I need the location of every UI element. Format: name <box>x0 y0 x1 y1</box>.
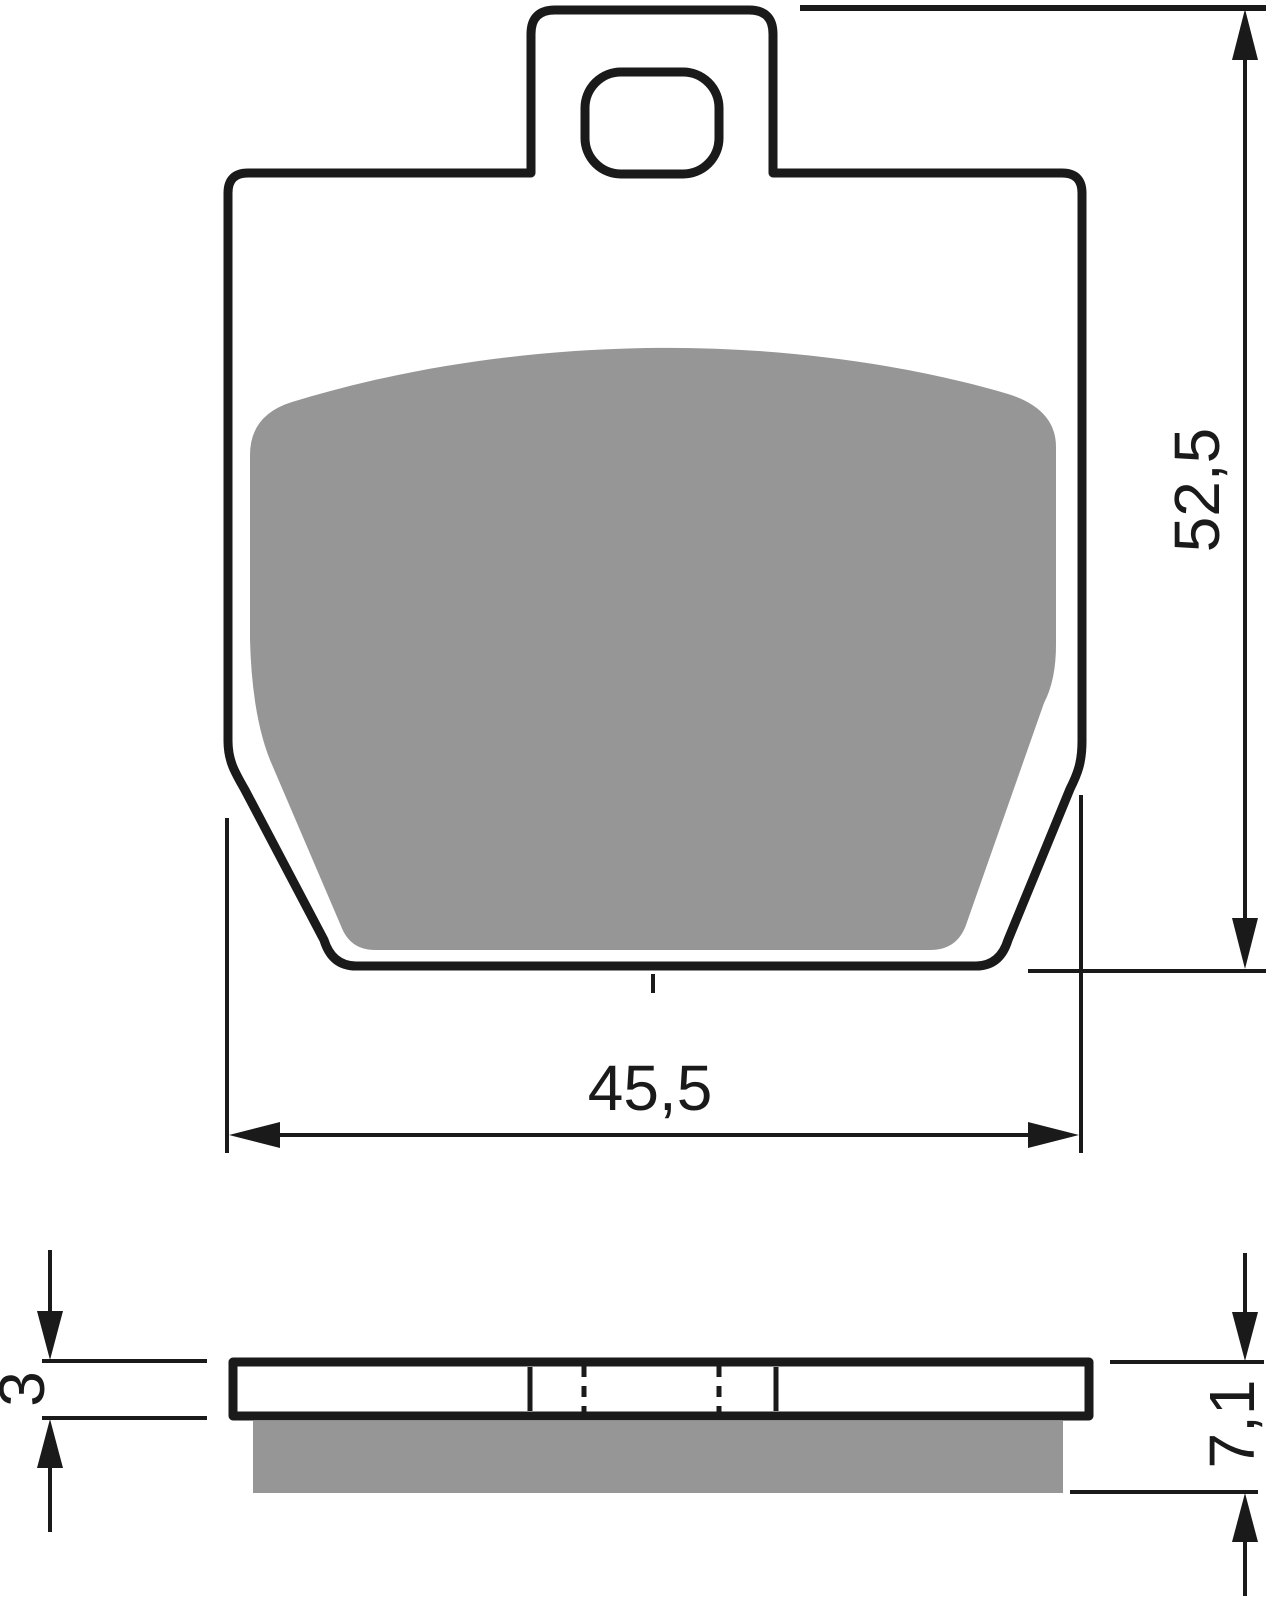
total-arrow-down <box>1232 1312 1258 1361</box>
dimension-label-total-thickness: 7,1 <box>1200 1380 1264 1469</box>
dimension-label-backplate-thickness: 3 <box>0 1371 54 1407</box>
total-arrow-up <box>1232 1493 1258 1542</box>
technical-drawing-canvas: 52,5 45,5 3 7,1 <box>0 0 1275 1600</box>
dimension-label-width: 45,5 <box>588 1056 713 1120</box>
height-arrow-down <box>1232 918 1258 969</box>
backplate-thickness-dimension <box>37 1250 207 1532</box>
dimension-label-height: 52,5 <box>1165 428 1229 553</box>
height-arrow-up <box>1232 9 1258 60</box>
mounting-hole <box>585 72 719 174</box>
side-backplate <box>233 1362 1089 1416</box>
front-view <box>228 10 1082 993</box>
backplate-arrow-down <box>37 1311 63 1360</box>
side-view <box>233 1362 1089 1493</box>
friction-material <box>250 348 1056 950</box>
width-arrow-left <box>229 1122 280 1148</box>
backplate-arrow-up <box>37 1419 63 1468</box>
brake-pad-drawing <box>0 0 1275 1600</box>
width-arrow-right <box>1028 1122 1079 1148</box>
side-friction-material <box>253 1421 1063 1493</box>
